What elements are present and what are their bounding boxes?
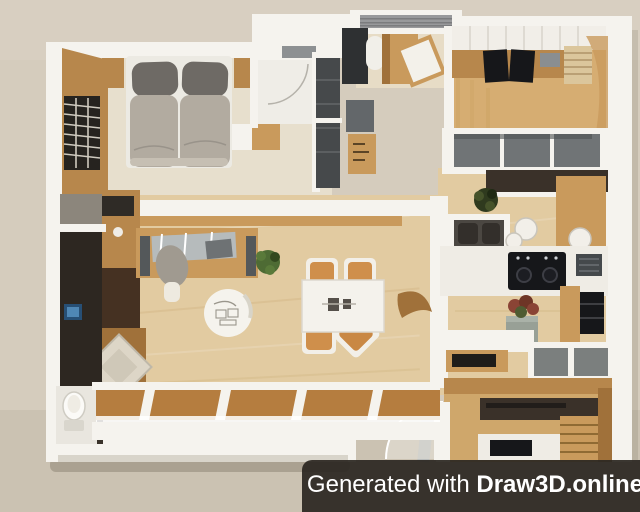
double-bed [126,56,232,168]
gray-sideboard [442,128,614,174]
ladder-shelf [564,46,592,84]
watermark-text: Generated with Draw3D.online [307,471,640,500]
floor-plant [474,188,498,212]
watermark-prefix: Generated with [307,471,476,498]
round-coffee-table [204,289,252,337]
wood-ledge [136,216,402,226]
bedroom-south-wall [92,200,448,216]
slatted-window-icon [64,96,100,170]
fridge-icon [578,292,604,334]
gray-shelf [282,46,316,58]
gray-cabinet [528,342,612,382]
cooktop-icon [508,252,566,290]
storage-box [348,134,376,174]
tv-icon [452,354,496,367]
watermark-bar: Generated with Draw3D.online [302,460,640,512]
bedroom-bench-white [232,124,252,150]
microwave-icon [576,254,602,276]
south-window-row [92,382,440,440]
utility-room [56,194,106,386]
closet-floor [258,60,312,124]
watermark-brand: Draw3D.online [476,471,640,498]
gray-unit [346,100,374,132]
dining-table [302,280,384,332]
white-curve-piece [366,36,384,70]
toilet-icon [63,392,85,431]
laptop-icon [490,440,532,456]
work-desk [136,228,258,278]
top-blinds [360,15,452,28]
kitchen [438,128,614,382]
floor-plan-svg [0,0,640,512]
charcoal-shelving [314,58,342,188]
floor-plan-render: Generated with Draw3D.online [0,0,640,512]
nightstand-left [102,58,124,88]
dark-cabinet [342,28,368,84]
